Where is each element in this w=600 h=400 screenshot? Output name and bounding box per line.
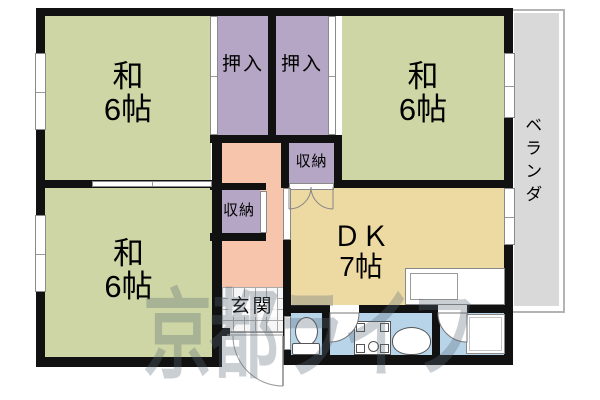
label-dk: ＤＫ 7帖 bbox=[306, 216, 416, 288]
label-washitsu-bottom-left: 和 6帖 bbox=[45, 235, 212, 305]
wall-genkan-stub bbox=[214, 328, 230, 336]
label-storage-lower: 収納 bbox=[218, 201, 260, 221]
wall-storage-lower-top bbox=[210, 183, 266, 190]
room-name: ＤＫ bbox=[333, 222, 389, 252]
wall-dk-top bbox=[334, 180, 513, 188]
floor-plan: 和 6帖 和 6帖 和 6帖 ＤＫ 7帖 押入 押入 収納 収納 玄関 ベランダ… bbox=[0, 0, 600, 400]
washing-machine-pan bbox=[354, 321, 391, 355]
wall-bathroom bbox=[432, 313, 440, 357]
kitchen-sink bbox=[410, 273, 458, 300]
label-genkan: 玄関 bbox=[222, 295, 283, 319]
wash-basin bbox=[392, 327, 431, 355]
label-veranda: ベランダ bbox=[519, 104, 543, 220]
label-washitsu-top-right: 和 6帖 bbox=[342, 58, 504, 128]
room-size: 6帖 bbox=[104, 93, 152, 126]
sliding-door-oshiire-left bbox=[210, 16, 218, 135]
wall-bottom-left bbox=[36, 357, 222, 367]
bathtub bbox=[466, 314, 505, 354]
window-dk bbox=[504, 188, 515, 245]
room-size: 7帖 bbox=[339, 252, 383, 282]
label-oshiire-right: 押入 bbox=[276, 53, 328, 77]
wall-oshiire-divider bbox=[268, 8, 276, 143]
toilet-door bbox=[284, 316, 291, 350]
wall-below-oshiire bbox=[210, 135, 342, 143]
room-size: 6帖 bbox=[104, 270, 152, 303]
label-storage-upper: 収納 bbox=[289, 152, 334, 172]
toilet-base bbox=[292, 343, 320, 355]
wall-storage-upper-left bbox=[281, 135, 289, 188]
window-room2 bbox=[504, 53, 515, 118]
wall-bottom-right bbox=[283, 355, 513, 365]
hall-dk-opening bbox=[283, 188, 291, 240]
wall-wet-top-c bbox=[467, 305, 513, 313]
wall-storage-lower-bottom bbox=[210, 233, 266, 241]
wall-wet-top-b bbox=[359, 305, 438, 313]
toilet-bowl bbox=[295, 317, 318, 346]
room-name: 和 bbox=[113, 60, 144, 93]
storage-lower-door bbox=[260, 191, 267, 233]
label-oshiire-left: 押入 bbox=[218, 53, 268, 77]
front-door-arc bbox=[233, 336, 283, 386]
room-name: 和 bbox=[113, 237, 144, 270]
label-washitsu-top-left: 和 6帖 bbox=[45, 58, 211, 128]
sliding-door-oshiire-right bbox=[328, 16, 336, 135]
wall-toilet bbox=[322, 313, 330, 357]
wall-dk-left bbox=[283, 240, 291, 313]
sliding-door-rooms bbox=[92, 181, 212, 187]
storage-upper-door-gap bbox=[289, 183, 334, 190]
room-size: 6帖 bbox=[399, 93, 447, 126]
wall-wet-top-a bbox=[283, 305, 330, 313]
room-name: 和 bbox=[408, 60, 439, 93]
